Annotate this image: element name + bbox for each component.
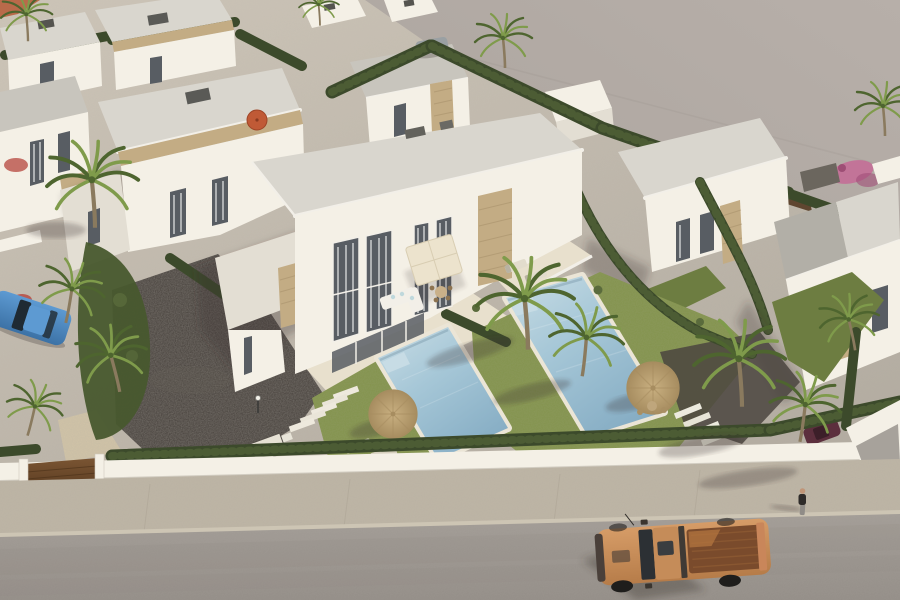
garden-chair	[661, 407, 667, 413]
sofa-cushion	[400, 292, 404, 296]
red-flowers	[4, 158, 28, 172]
window	[212, 176, 228, 226]
window	[150, 56, 162, 84]
sofa-cushion	[410, 296, 414, 300]
garden-chair	[637, 409, 643, 415]
dining-chair	[448, 286, 453, 291]
villa-development-render	[0, 0, 900, 600]
straw-umbrella	[369, 390, 417, 438]
facade-window-2	[366, 230, 392, 333]
window	[30, 139, 44, 186]
sofa-cushion	[391, 295, 395, 299]
facade-window-1	[333, 237, 359, 342]
shrub	[696, 318, 704, 326]
window	[58, 131, 70, 173]
window	[244, 336, 252, 375]
shrub	[113, 293, 127, 307]
cypress-hedge	[0, 449, 36, 452]
side-mirror	[645, 583, 652, 588]
garden-table	[647, 401, 657, 411]
dining-table	[435, 286, 447, 298]
dining-chair	[446, 296, 451, 301]
palm-shadow	[26, 222, 86, 238]
window	[394, 103, 406, 137]
window	[700, 211, 714, 254]
side-mirror	[641, 519, 648, 524]
window	[676, 218, 690, 262]
shrub	[594, 286, 603, 295]
render-canvas	[0, 0, 900, 600]
orange-parasol-pole	[255, 118, 258, 121]
dining-chair	[430, 286, 435, 291]
sunroof	[657, 541, 674, 556]
head	[800, 488, 806, 494]
torso	[799, 494, 807, 505]
lamp-head	[256, 396, 261, 401]
legs	[800, 504, 806, 515]
hood-scoop	[612, 550, 631, 563]
dining-chair	[434, 298, 439, 303]
window	[170, 188, 186, 238]
gravel-highlight	[150, 366, 230, 394]
